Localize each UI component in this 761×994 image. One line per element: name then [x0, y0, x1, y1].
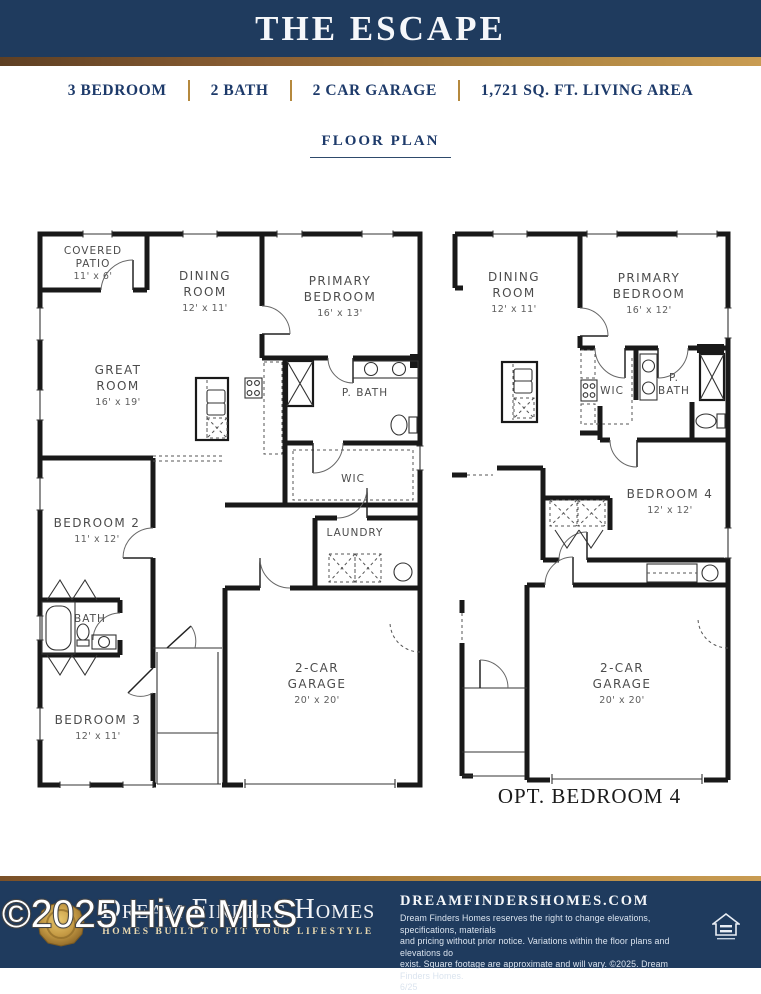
room-label: ROOM	[96, 379, 139, 393]
room-dims: 16' x 12'	[626, 305, 672, 316]
room-label: GREAT	[95, 363, 142, 377]
room-dims: 12' x 11'	[491, 304, 537, 315]
spec-divider	[290, 80, 292, 101]
room-label: DINING	[488, 270, 540, 284]
room-label: COVERED	[64, 245, 122, 257]
stove	[245, 378, 262, 398]
room-labels: COVERED PATIO 11' x 6' DINING ROOM 12' x…	[54, 245, 388, 742]
watermark: ©2025 Hive MLS	[2, 893, 297, 937]
room-dims: 12' x 11'	[182, 303, 228, 314]
room-label: WIC	[600, 385, 624, 397]
room-label: GARAGE	[593, 677, 652, 691]
room-label: BEDROOM 3	[55, 713, 142, 727]
spec-bedrooms: 3 BEDROOM	[68, 82, 167, 100]
floor-plan-option: DINING ROOM 12' x 11' PRIMARY BEDROOM 16…	[447, 228, 732, 788]
spec-garage: 2 CAR GARAGE	[313, 82, 437, 100]
room-dims: 12' x 12'	[647, 505, 693, 516]
gold-divider-top	[0, 57, 761, 66]
room-label: P. BATH	[342, 387, 388, 399]
room-label: P.	[669, 372, 679, 384]
disclaimer-line: exist. Square footage are approximate an…	[400, 959, 700, 982]
room-label: BATH	[74, 613, 106, 625]
room-dims: 16' x 13'	[317, 308, 363, 319]
option-caption: OPT. BEDROOM 4	[447, 784, 732, 809]
kitchen-island	[196, 378, 228, 440]
website-text: DREAMFINDERSHOMES.COM	[400, 893, 700, 910]
spec-divider	[188, 80, 190, 101]
room-label: 2-CAR	[600, 661, 644, 675]
room-dims: 12' x 11'	[75, 731, 121, 742]
stove	[581, 380, 597, 401]
entry-porch	[153, 648, 222, 788]
kitchen-island	[502, 362, 537, 422]
room-label: BEDROOM 2	[54, 516, 141, 530]
closet-doors	[47, 580, 97, 675]
room-label: WIC	[341, 473, 365, 485]
hall-bath-fixtures	[42, 602, 116, 654]
room-dims: 20' x 20'	[294, 695, 340, 706]
room-label: PRIMARY	[618, 271, 680, 285]
equal-housing-icon	[712, 913, 740, 943]
garage-door	[243, 779, 397, 788]
room-label: PATIO	[76, 258, 111, 270]
room-dims: 20' x 20'	[599, 695, 645, 706]
windows	[36, 230, 424, 788]
spec-divider	[458, 80, 460, 101]
spec-baths: 2 BATH	[211, 82, 269, 100]
footer-right: DREAMFINDERSHOMES.COM Dream Finders Home…	[400, 893, 700, 994]
laundry-closet	[550, 500, 605, 548]
disclaimer-line: Dream Finders Homes reserves the right t…	[400, 913, 700, 936]
utility-counter	[647, 564, 718, 582]
floor-plan-main: COVERED PATIO 11' x 6' DINING ROOM 12' x…	[35, 228, 425, 788]
room-label: BEDROOM 4	[627, 487, 714, 501]
room-label: PRIMARY	[309, 274, 371, 288]
room-label: BATH	[658, 385, 690, 397]
spec-sqft: 1,721 SQ. FT. LIVING AREA	[481, 82, 693, 100]
section-title-wrap: FLOOR PLAN	[0, 132, 761, 158]
disclaimer-line: and pricing without prior notice. Variat…	[400, 936, 700, 959]
room-dims: 16' x 19'	[95, 397, 141, 408]
laundry-fixtures	[329, 554, 412, 582]
specs-bar: 3 BEDROOM 2 BATH 2 CAR GARAGE 1,721 SQ. …	[0, 80, 761, 101]
room-dims: 11' x 6'	[73, 271, 112, 282]
room-label: GARAGE	[288, 677, 347, 691]
page-title: THE ESCAPE	[255, 9, 506, 49]
room-label: DINING	[179, 269, 231, 283]
room-label: 2-CAR	[295, 661, 339, 675]
room-label: LAUNDRY	[327, 527, 384, 539]
section-title: FLOOR PLAN	[310, 133, 452, 158]
room-label: ROOM	[183, 285, 226, 299]
header-band: THE ESCAPE	[0, 0, 761, 57]
disclaimer-line: 6/25	[400, 982, 700, 994]
walls	[40, 234, 420, 785]
room-label: BEDROOM	[613, 287, 685, 301]
room-label: BEDROOM	[304, 290, 376, 304]
entry-porch	[462, 688, 527, 776]
room-label: ROOM	[492, 286, 535, 300]
room-dims: 11' x 12'	[74, 534, 120, 545]
doors	[93, 260, 367, 696]
